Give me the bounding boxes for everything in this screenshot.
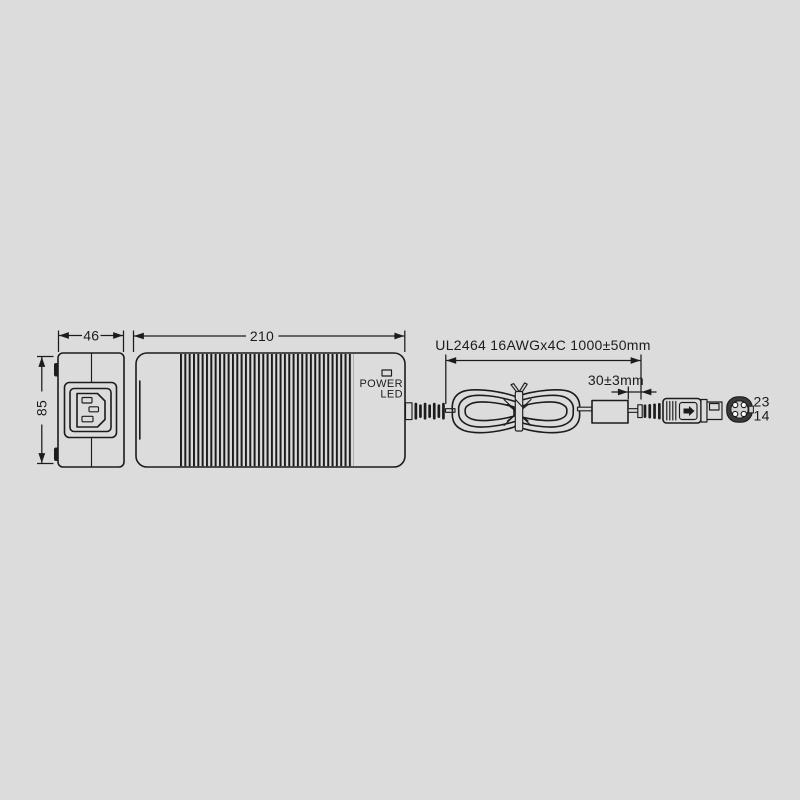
coiled-cable — [452, 383, 580, 433]
ferrite-bead — [592, 401, 628, 424]
cable-segment — [446, 409, 456, 413]
power-led-label-line2: LED — [380, 389, 403, 401]
dim-cable-length: UL2464 16AWGx4C 1000±50mm — [435, 337, 650, 404]
dim-height-label: 85 — [34, 400, 50, 416]
power-led-indicator — [382, 370, 392, 376]
front-view — [54, 353, 124, 467]
plug-end-view: 23 14 — [727, 394, 770, 424]
pin-numbers-bottom: 14 — [754, 408, 770, 424]
output-cable — [406, 383, 639, 433]
ac-inlet — [65, 383, 117, 438]
plug-collar — [701, 400, 707, 423]
adapter-mechanical-drawing: 46 85 POWER LED 210 — [0, 0, 800, 800]
ac-inlet-pin-bottom — [82, 416, 93, 422]
dim-width-label: 46 — [83, 328, 99, 344]
ac-inlet-pin-middle — [89, 407, 99, 412]
plug-strain-relief — [638, 403, 661, 420]
bead-dim-label: 30±3mm — [588, 372, 644, 388]
drawing-canvas: 46 85 POWER LED 210 — [0, 0, 800, 800]
ac-inlet-bezel-outer — [65, 383, 117, 438]
cable-segment — [578, 407, 593, 411]
heatsink-fins — [180, 354, 353, 466]
dim-bead-to-plug: 30±3mm — [588, 372, 657, 400]
side-view: POWER LED — [136, 353, 405, 467]
dim-width: 46 — [59, 328, 124, 353]
cable-segment — [628, 409, 639, 413]
mounting-tab-bottom — [54, 448, 59, 462]
dc-plug — [638, 399, 722, 424]
ac-inlet-pin-top — [82, 398, 92, 404]
cable-spec-label: UL2464 16AWGx4C 1000±50mm — [435, 337, 650, 353]
dim-length: 210 — [134, 328, 405, 352]
adapter-strain-relief — [406, 403, 445, 420]
dim-height: 85 — [34, 357, 54, 464]
dim-length-label: 210 — [250, 328, 274, 344]
mounting-tab-top — [54, 363, 59, 377]
